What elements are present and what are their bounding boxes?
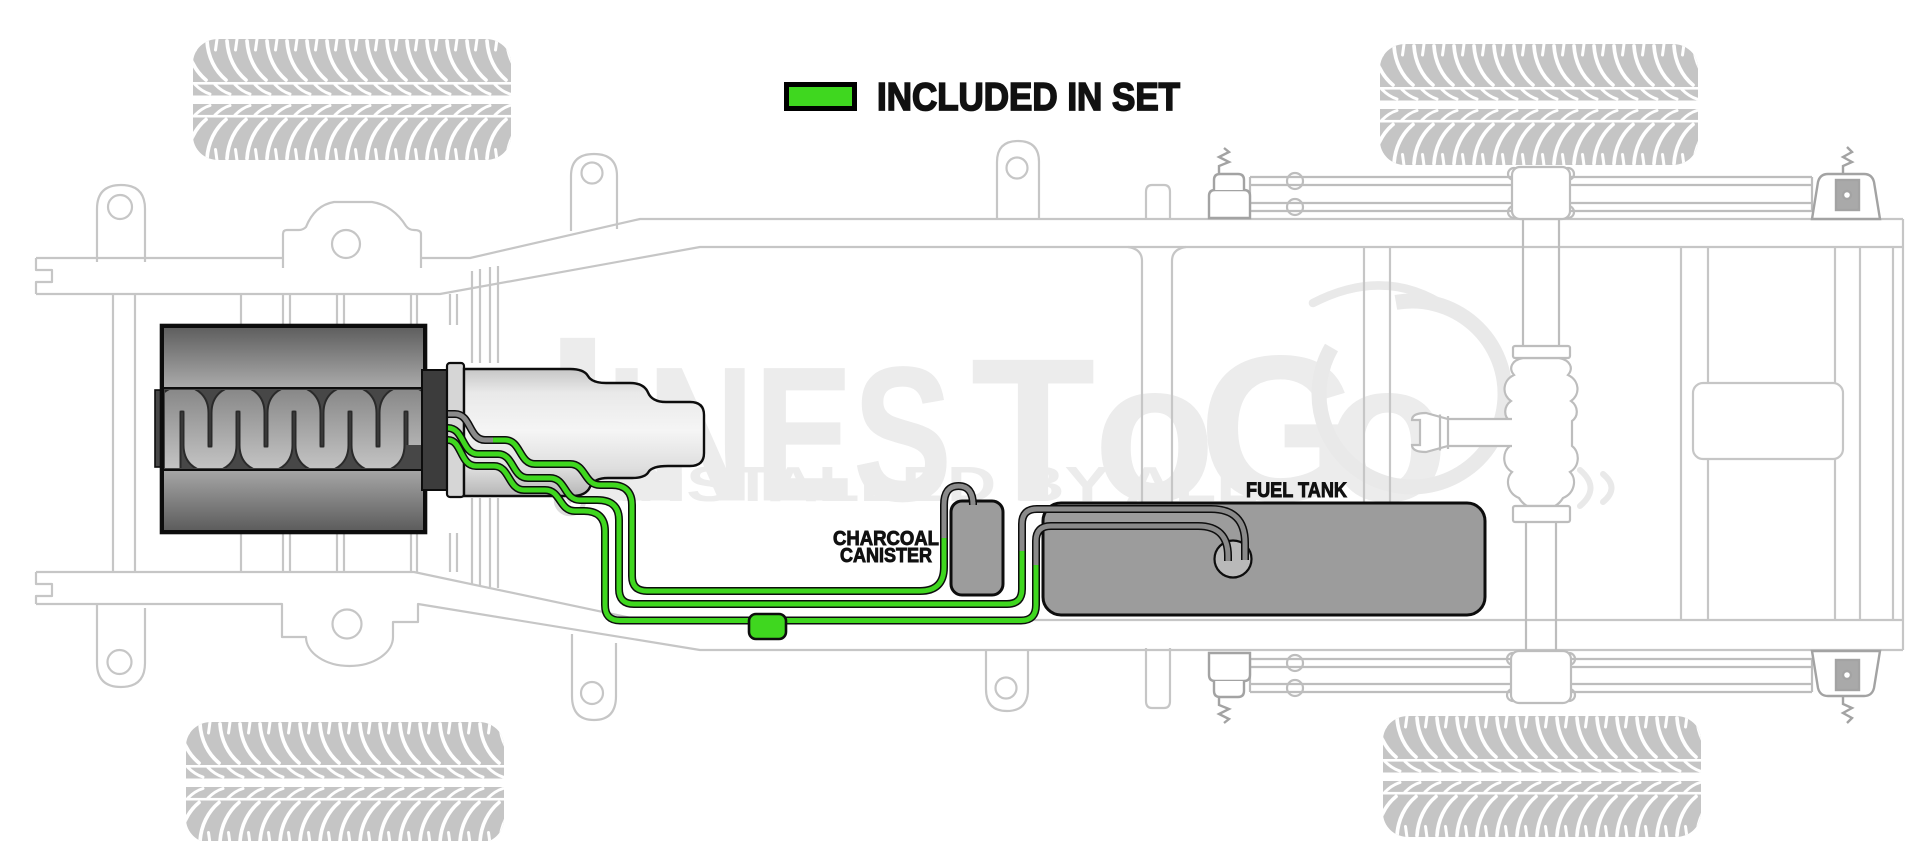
svg-text:FUEL TANK: FUEL TANK <box>1246 479 1347 502</box>
svg-text:INCLUDED IN SET: INCLUDED IN SET <box>877 76 1180 119</box>
svg-text:CANISTER: CANISTER <box>840 545 932 567</box>
